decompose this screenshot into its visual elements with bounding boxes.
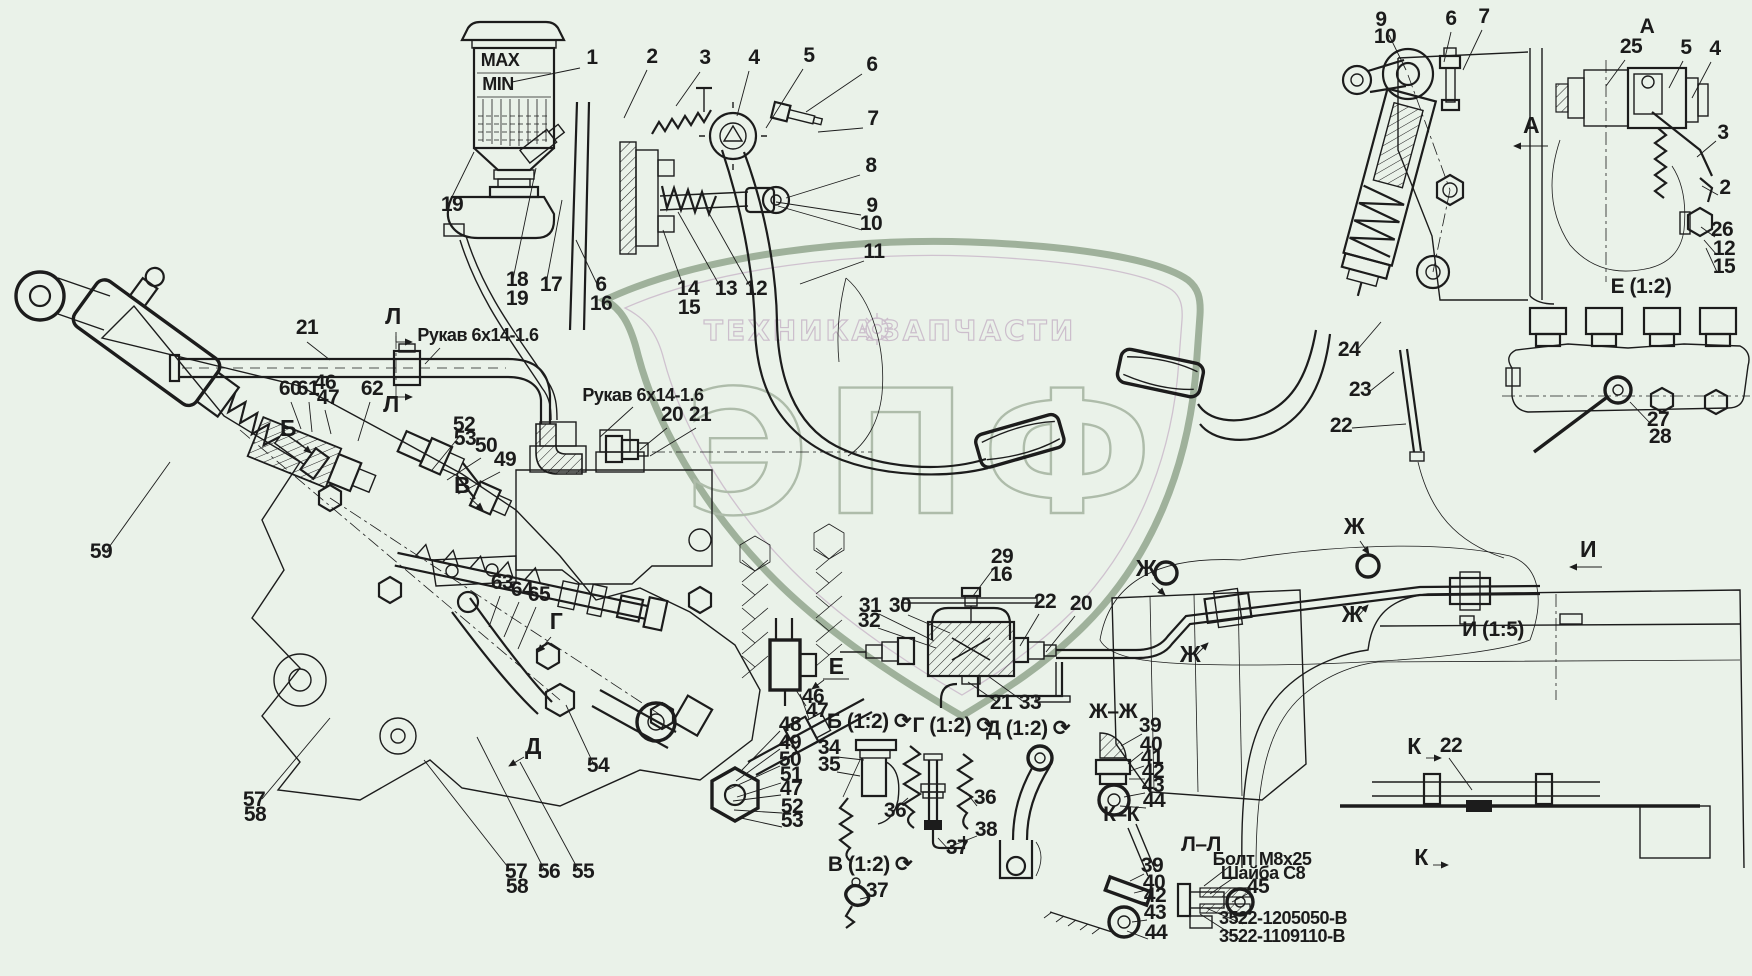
watermark-brand-left: ТЕХНИКА xyxy=(704,314,876,347)
part-label-38: 38 xyxy=(975,818,998,841)
note-label-шайба-с8: Шайба С8 xyxy=(1221,863,1306,883)
part-label-23: 23 xyxy=(1349,378,1371,401)
leader-line xyxy=(1020,614,1039,646)
part-label-15: 15 xyxy=(1713,255,1736,278)
part-label-28: 28 xyxy=(1649,425,1672,448)
part-label-3: 3 xyxy=(699,46,710,69)
section-marker-в: В xyxy=(454,472,470,498)
part-label-15: 15 xyxy=(678,296,701,319)
part-label-20: 20 xyxy=(661,403,683,426)
part-label-36: 36 xyxy=(884,799,906,822)
section-marker-л: Л xyxy=(385,303,401,329)
part-label-5: 5 xyxy=(1680,36,1692,59)
part-label-8: 8 xyxy=(865,154,877,177)
part-label-65: 65 xyxy=(528,583,551,606)
section-marker-ж: Ж xyxy=(1179,641,1201,667)
view-i xyxy=(1112,590,1744,868)
view-title-и-1-5-: И (1:5) xyxy=(1462,618,1524,641)
part-label-1: 1 xyxy=(586,46,598,69)
part-label-63: 63 xyxy=(491,571,513,594)
part-label-12: 12 xyxy=(745,277,767,300)
view-title-е-1-2-: Е (1:2) xyxy=(1611,275,1672,298)
part-label-3: 3 xyxy=(1717,121,1728,144)
leader-line xyxy=(262,718,330,799)
leader-line xyxy=(737,71,749,116)
part-label-17: 17 xyxy=(540,273,562,296)
note-label-min: MIN xyxy=(482,74,514,94)
part-label-2: 2 xyxy=(1719,176,1730,199)
part-label-47: 47 xyxy=(806,699,828,722)
section-marker-а: А xyxy=(1523,112,1539,138)
watermark-brand-right: ЗАПЧАСТИ xyxy=(880,314,1076,347)
leader-line xyxy=(786,175,860,198)
part-label-5: 5 xyxy=(803,44,815,67)
note-label-рукав-6х14-1-6: Рукав 6х14-1.6 xyxy=(417,325,539,345)
part-label-36: 36 xyxy=(974,786,996,809)
leader-line xyxy=(1463,30,1482,70)
part-label-53: 53 xyxy=(454,427,476,450)
part-label-16: 16 xyxy=(990,563,1012,586)
leader-line xyxy=(1449,758,1472,790)
leader-line xyxy=(513,168,536,279)
leader-line xyxy=(358,402,370,441)
part-label-2: 2 xyxy=(646,45,657,68)
leader-line xyxy=(107,462,170,550)
section-marker-л: Л xyxy=(383,391,399,417)
diagram-page: ТЕХНИКА ЗАПЧАСТИ ЭПФ xyxy=(0,0,1752,976)
leader-line xyxy=(309,402,312,432)
leader-line xyxy=(520,762,579,871)
part-label-49: 49 xyxy=(494,448,516,471)
section-marker-г: Г xyxy=(550,608,563,634)
section-marker-к: К xyxy=(1414,844,1429,870)
section-marker-и: И xyxy=(1580,536,1596,562)
part-label-62: 62 xyxy=(361,377,383,400)
leader-line xyxy=(778,206,862,230)
watermark-logo: ЭПФ xyxy=(684,353,1167,554)
part-label-32: 32 xyxy=(858,609,880,632)
view-a xyxy=(1552,60,1712,282)
note-label-3522-1205050-в: 3522-1205050-В xyxy=(1219,908,1348,928)
leader-line xyxy=(504,602,519,637)
section-marker-к: К xyxy=(1407,733,1422,759)
leader-line xyxy=(489,596,500,627)
part-label-10: 10 xyxy=(1374,25,1396,48)
note-label-max: MAX xyxy=(481,50,520,70)
part-label-20: 20 xyxy=(1070,592,1092,615)
part-label-58: 58 xyxy=(506,875,529,898)
part-label-33: 33 xyxy=(1019,691,1041,714)
leader-line xyxy=(307,342,330,360)
part-label-47: 47 xyxy=(317,386,339,409)
part-label-4: 4 xyxy=(1709,37,1721,60)
part-label-24: 24 xyxy=(1338,338,1361,361)
part-label-54: 54 xyxy=(587,754,610,777)
part-label-55: 55 xyxy=(572,860,595,883)
part-label-19: 19 xyxy=(506,287,528,310)
section-marker-ж: Ж xyxy=(1135,555,1157,581)
leader-line xyxy=(837,772,860,776)
part-label-19: 19 xyxy=(441,193,463,216)
leader-line xyxy=(624,70,647,118)
part-label-44: 44 xyxy=(1143,789,1166,812)
view-title-к-к: К–К xyxy=(1103,803,1139,826)
leader-line xyxy=(1606,60,1625,86)
leader-line xyxy=(600,407,633,437)
leader-line xyxy=(776,202,861,215)
pipe-to-tank xyxy=(1056,546,1540,665)
view-title-б-1-2-: Б (1:2) ⟳ xyxy=(827,710,912,733)
parts-diagram-canvas: ТЕХНИКА ЗАПЧАСТИ ЭПФ xyxy=(0,0,1752,976)
part-label-37: 37 xyxy=(866,879,888,902)
leader-line xyxy=(518,607,536,649)
leader-line xyxy=(766,69,803,128)
part-label-6: 6 xyxy=(866,53,877,76)
detail-k xyxy=(1044,824,1156,937)
part-label-59: 59 xyxy=(90,540,112,563)
part-label-53: 53 xyxy=(781,809,803,832)
part-label-21: 21 xyxy=(296,316,319,339)
booster-cylinder xyxy=(16,244,522,520)
leader-line xyxy=(424,760,511,871)
note-label-рукав-6х14-1-6: Рукав 6х14-1.6 xyxy=(582,385,704,405)
part-label-4: 4 xyxy=(748,46,760,69)
leader-line xyxy=(1357,322,1381,350)
part-label-13: 13 xyxy=(715,277,737,300)
part-label-22: 22 xyxy=(1034,590,1056,613)
view-e xyxy=(1502,308,1750,452)
leader-line xyxy=(512,68,580,82)
leader-line xyxy=(818,128,863,132)
leader-line xyxy=(1669,61,1683,88)
frame-bracket xyxy=(102,306,760,806)
view-title-д-1-2-: Д (1:2) ⟳ xyxy=(986,717,1071,740)
part-label-16: 16 xyxy=(590,292,612,315)
section-marker-е: Е xyxy=(829,653,844,679)
section-marker-д: Д xyxy=(525,733,541,759)
part-label-21: 21 xyxy=(990,691,1013,714)
leader-line xyxy=(806,74,862,112)
part-label-7: 7 xyxy=(867,107,878,130)
brake-pedal-assembly xyxy=(1116,48,1554,558)
part-label-56: 56 xyxy=(538,860,560,883)
leader-line xyxy=(640,428,667,450)
part-label-6: 6 xyxy=(1445,7,1456,30)
part-label-37: 37 xyxy=(946,836,968,859)
part-label-10: 10 xyxy=(860,212,882,235)
view-title-ж-ж: Ж–Ж xyxy=(1088,700,1139,723)
section-marker-б: Б xyxy=(280,415,296,441)
part-label-7: 7 xyxy=(1478,5,1489,28)
part-label-25: 25 xyxy=(1620,35,1643,58)
section-marker-ж: Ж xyxy=(1343,513,1365,539)
part-label-11: 11 xyxy=(863,240,885,263)
part-label-21: 21 xyxy=(689,403,712,426)
section-marker-ж: Ж xyxy=(1341,601,1363,627)
detail-d xyxy=(1000,746,1052,878)
leader-line xyxy=(325,410,331,434)
part-label-22: 22 xyxy=(1440,734,1462,757)
view-title-в-1-2-: В (1:2) ⟳ xyxy=(828,853,913,876)
leader-line xyxy=(734,810,782,813)
part-label-30: 30 xyxy=(889,594,911,617)
view-title-а: А xyxy=(1640,15,1655,38)
leader-line xyxy=(1352,424,1406,428)
view-title-г-1-2-: Г (1:2) ⟳ xyxy=(912,714,994,737)
part-label-35: 35 xyxy=(818,753,841,776)
detail-g xyxy=(921,754,972,848)
leader-line xyxy=(800,261,864,284)
leader-line xyxy=(1444,32,1451,62)
part-label-22: 22 xyxy=(1330,414,1352,437)
part-label-58: 58 xyxy=(244,803,267,826)
leader-line xyxy=(1369,372,1394,392)
note-label-3522-1109110-в: 3522-1109110-В xyxy=(1219,926,1346,946)
leader-line xyxy=(741,818,782,827)
part-label-44: 44 xyxy=(1145,921,1168,944)
leader-line xyxy=(425,348,440,364)
